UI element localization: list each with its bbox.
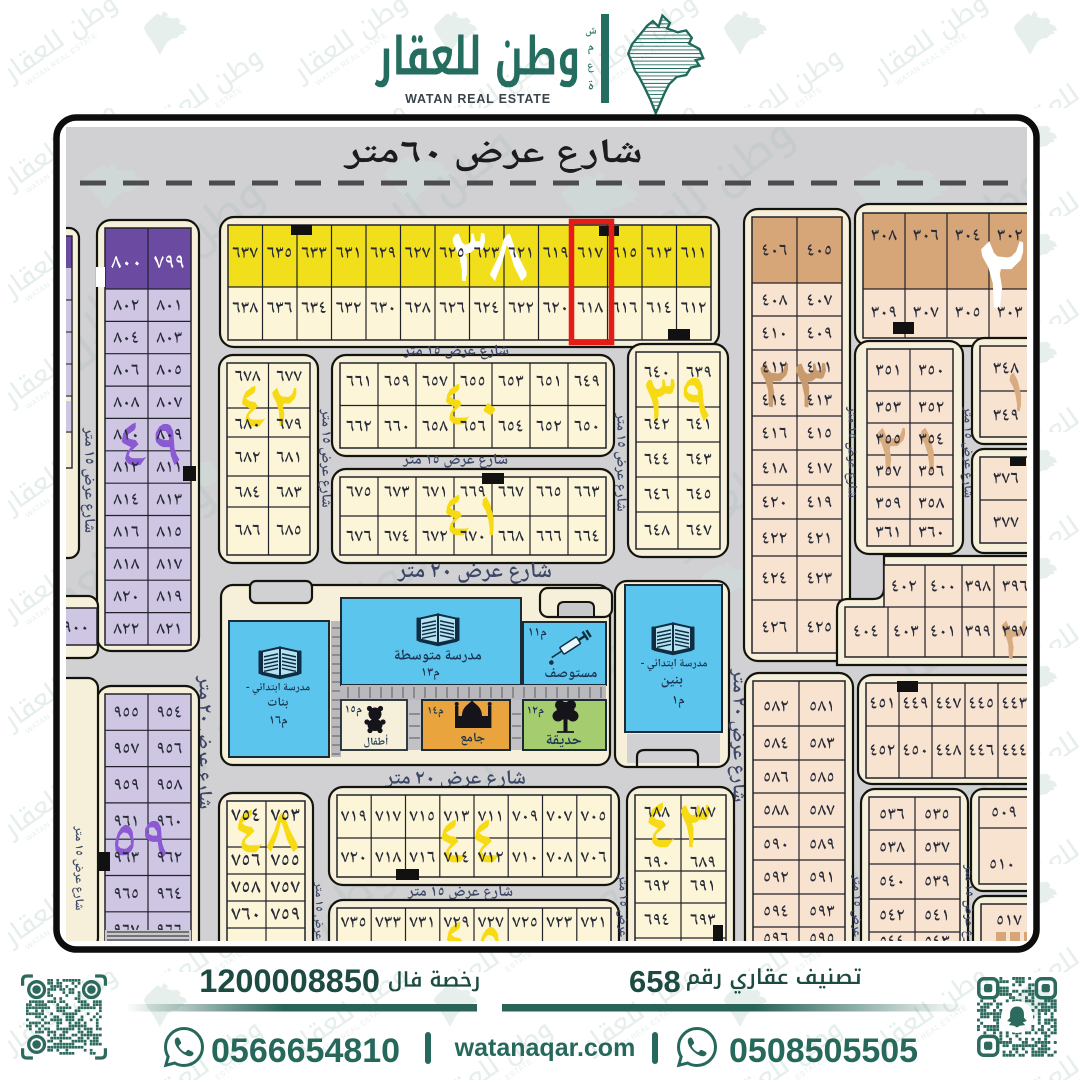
svg-text:658: 658 [629, 964, 681, 999]
svg-text:1200008850: 1200008850 [199, 963, 380, 999]
svg-text:0566654810: 0566654810 [211, 1032, 400, 1070]
svg-text:WATAN REAL ESTATE: WATAN REAL ESTATE [405, 92, 551, 106]
svg-text:0508505505: 0508505505 [729, 1032, 918, 1070]
svg-text:watanaqar.com: watanaqar.com [454, 1034, 636, 1062]
